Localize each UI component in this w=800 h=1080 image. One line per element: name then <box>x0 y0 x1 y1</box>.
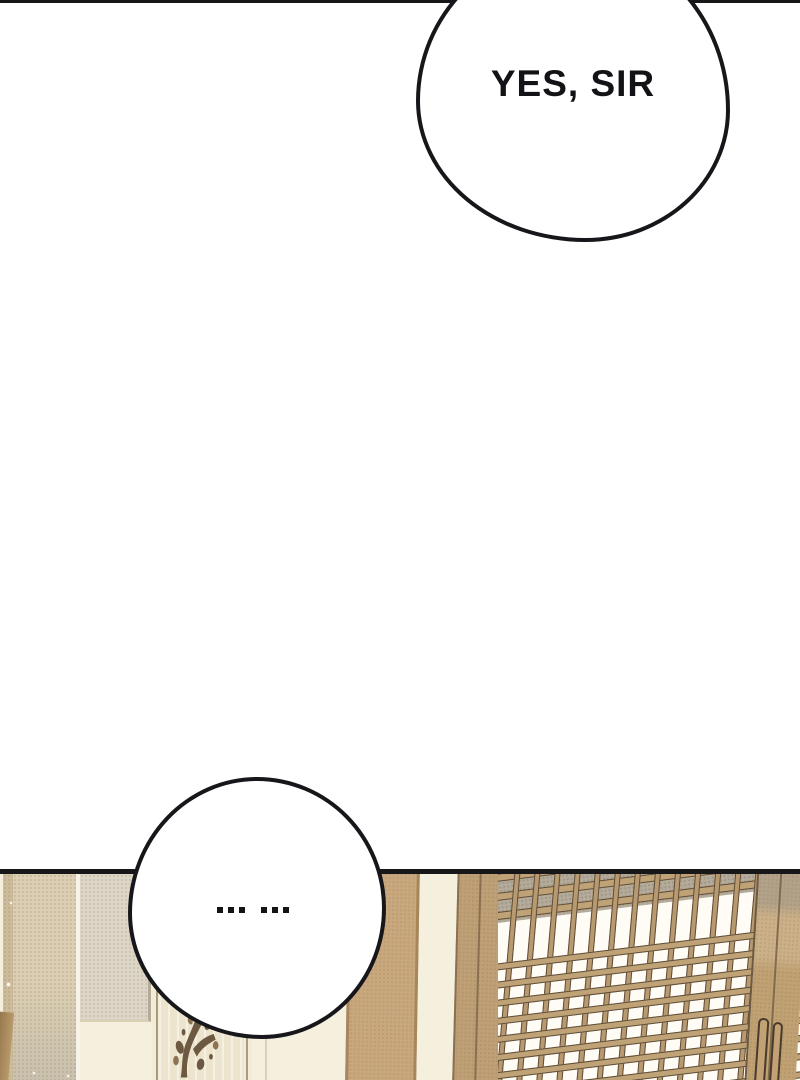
room-scene-panel <box>0 870 800 1080</box>
dot <box>239 907 245 913</box>
sparkle-dot <box>7 983 10 986</box>
sparkle-dot <box>33 1072 35 1074</box>
ellipsis-dots <box>217 907 289 913</box>
panel-divider-bottom <box>0 869 800 874</box>
lattice-door <box>498 870 800 1080</box>
dot <box>217 907 223 913</box>
dot-group <box>261 907 289 913</box>
comic-page: YES, SIR <box>0 0 800 1080</box>
speech-bubble-bottom <box>128 777 386 1039</box>
dot <box>261 907 267 913</box>
dot <box>283 907 289 913</box>
speech-bubble-top: YES, SIR <box>416 0 730 242</box>
post-seam <box>474 870 482 1080</box>
dot <box>228 907 234 913</box>
sparkle-dot <box>67 1075 69 1077</box>
dot <box>272 907 278 913</box>
speech-text: YES, SIR <box>491 63 655 105</box>
wall-column-tan <box>13 870 76 1080</box>
dot-group <box>217 907 245 913</box>
sparkle-dot <box>10 902 12 904</box>
